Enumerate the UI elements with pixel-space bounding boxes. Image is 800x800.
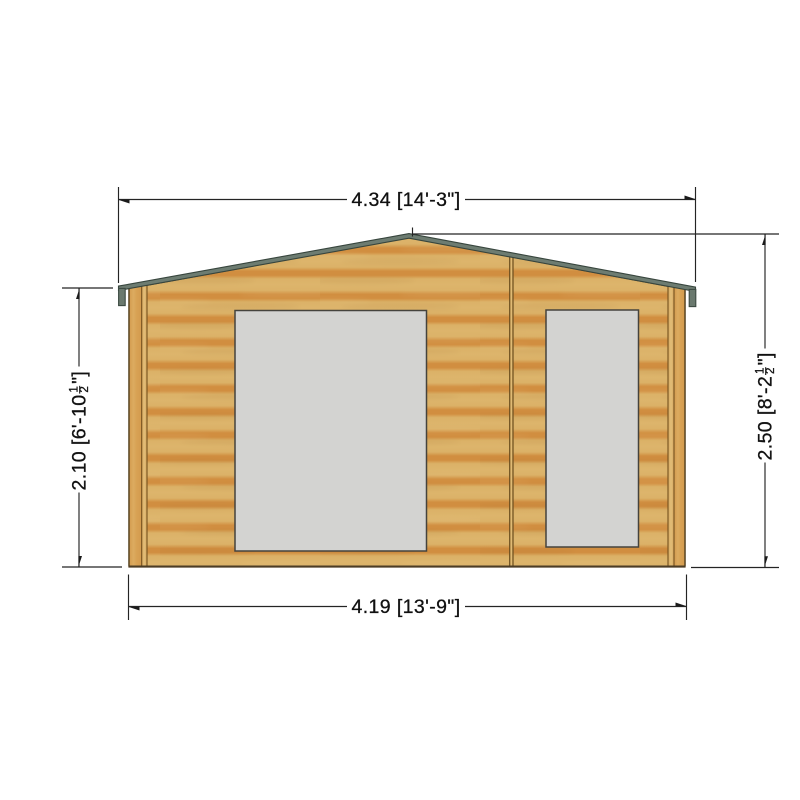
svg-text:2.10 [6'-10: 2.10 [6'-10	[69, 395, 91, 491]
svg-text:"]: "]	[755, 352, 777, 365]
svg-text:4.34 [14'-3"]: 4.34 [14'-3"]	[351, 189, 460, 211]
svg-text:2: 2	[79, 386, 91, 392]
svg-text:4.19 [13'-9"]: 4.19 [13'-9"]	[351, 596, 460, 618]
svg-text:"]: "]	[69, 371, 91, 384]
svg-text:2: 2	[765, 368, 777, 374]
svg-text:2.50 [8'-2: 2.50 [8'-2	[755, 376, 777, 461]
